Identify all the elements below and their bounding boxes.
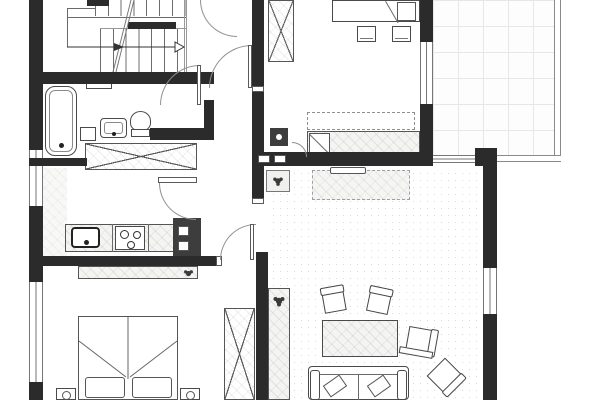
washbasin (100, 118, 127, 138)
door-arc-top-edge (200, 0, 237, 37)
chair-top-right (366, 289, 392, 315)
door-frame-cap-2 (252, 198, 264, 204)
bookshelf (268, 288, 290, 400)
chair-top-left (321, 288, 346, 313)
sofa-armrest-right (397, 370, 407, 400)
coffee-table (322, 320, 398, 357)
kitchen-sink (71, 227, 100, 248)
wall-left-bottom (29, 382, 43, 400)
balcony-railing-right (554, 0, 561, 160)
staircase (43, 0, 187, 72)
door-leaf-bathroom (197, 65, 201, 105)
lamp (186, 391, 195, 400)
kitchen-faucet (84, 240, 89, 245)
burner-3 (127, 241, 135, 249)
washbasin-faucet (112, 132, 116, 136)
wall-bathroom-north (29, 72, 214, 84)
wall-bedroom-living (256, 252, 268, 400)
lamp (62, 391, 71, 400)
wall-hall-east-lower (252, 92, 264, 198)
wall-right-lower (483, 314, 497, 400)
toilet-tank (131, 129, 150, 137)
door-leaf-hall-top (248, 45, 252, 88)
toilet-bowl (130, 111, 151, 131)
wall-hall-east-upper (252, 0, 264, 86)
sofa-seat-divider (358, 375, 359, 400)
bed-pillow-left (85, 377, 125, 398)
door-frame-cap-3 (216, 256, 222, 266)
washing-machine (80, 127, 96, 141)
plant-icon (271, 293, 287, 309)
floor-unit (266, 170, 290, 192)
door-leaf-bedroom2 (250, 224, 254, 260)
service-shaft (173, 218, 201, 258)
balcony-floor (433, 0, 556, 157)
door-arc-hall-top (209, 45, 252, 88)
cooktop (115, 226, 145, 250)
bathtub (45, 86, 77, 156)
balcony-railing-bottom (497, 155, 561, 162)
nightstand-right (180, 388, 200, 400)
vent-dot (276, 134, 282, 140)
kitchen-floor-strip (43, 168, 67, 256)
wall-duct-1 (258, 155, 270, 163)
vent-shaft (270, 128, 288, 146)
shaft-duct-1 (178, 226, 189, 236)
wall-bathroom-east (204, 100, 214, 130)
sofa (308, 366, 409, 400)
bathtub-drain (59, 143, 64, 148)
wall-top-stub (87, 0, 109, 6)
wall-corner-column (475, 148, 497, 166)
burner-1 (120, 230, 129, 239)
top-wardrobe (268, 0, 294, 62)
nightstand-left (56, 388, 76, 400)
wall-left-mid (29, 206, 43, 282)
bed-pillow-right (132, 377, 172, 398)
sofa-armrest-left (310, 370, 320, 400)
window-balcony-strip (433, 155, 477, 163)
wall-bathroom-south-left (29, 158, 87, 166)
stair-arrow (43, 0, 187, 72)
wall-shelf (330, 167, 366, 174)
window-right (483, 268, 497, 314)
top-bed (332, 0, 420, 22)
top-bed-pillow (397, 2, 416, 21)
window-left-2 (29, 282, 43, 382)
double-bed (78, 316, 178, 400)
sofa-cushion-right (367, 375, 391, 398)
wall-bedroomtop-east-lower (420, 104, 433, 166)
counter-divider-1 (112, 224, 113, 252)
plant-icon (182, 267, 195, 280)
bedroom-wardrobe (224, 308, 255, 400)
window-bedroomtop (420, 42, 433, 104)
burner-2 (133, 231, 141, 239)
floor-plan (0, 0, 600, 400)
overhead-cabinet (307, 112, 415, 130)
shaft-duct-2 (178, 241, 189, 251)
wall-duct-2 (274, 155, 286, 163)
sideboard-dashed (312, 170, 410, 200)
stool-right (392, 26, 411, 42)
counter-divider-2 (148, 224, 149, 252)
daybed-pillow (309, 133, 330, 154)
dresser (78, 266, 198, 279)
wall-right-upper (483, 166, 497, 268)
door-arc-kitchen (159, 183, 196, 220)
door-leaf-kitchen (158, 177, 197, 183)
stool-left (357, 26, 376, 42)
hall-wardrobe (85, 143, 197, 170)
sofa-cushion-left (323, 375, 347, 398)
plant-icon (271, 174, 285, 188)
wall-kitchen-south (29, 256, 222, 266)
wall-bedroomtop-east-upper (420, 0, 433, 42)
